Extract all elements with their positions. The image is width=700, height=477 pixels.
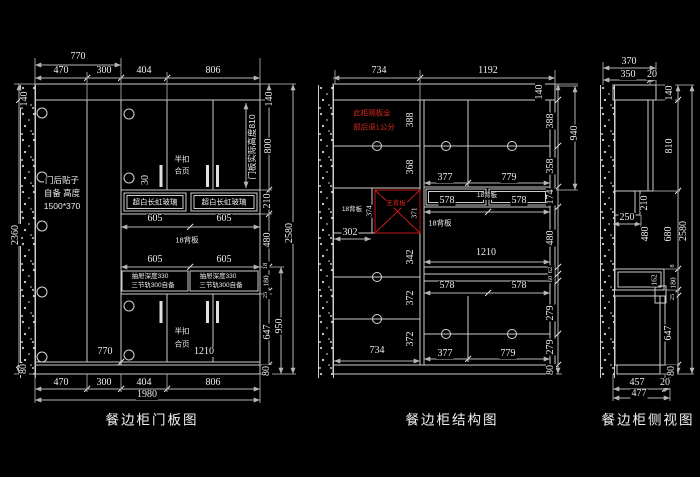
dim-label: 30 — [141, 174, 151, 186]
dim-label: 80 — [262, 365, 272, 377]
dim-label: 210 — [263, 193, 273, 210]
dim-label: 371 — [410, 206, 418, 219]
dim-label: 770 — [97, 347, 114, 357]
dim-label: 388 — [406, 112, 416, 129]
dim-label: 350 — [620, 70, 637, 80]
dim-label: 80 — [546, 364, 556, 376]
dim-label: 1192 — [477, 66, 499, 76]
dim-label: 374 — [365, 204, 373, 217]
dim-label: 210 — [640, 195, 650, 212]
dim-label: 605 — [216, 214, 233, 224]
drawer-note: 抽屉深度330 — [199, 274, 238, 281]
dim-label: 140 — [20, 91, 30, 108]
dim-label: 140 — [665, 85, 675, 102]
dim-label: 372 — [406, 331, 416, 348]
dim-label: 377 — [437, 173, 454, 183]
dim-label: 480 — [263, 232, 273, 249]
no-backboard-label: 无背板 — [385, 201, 407, 208]
dim-label: 140 — [265, 91, 275, 108]
dim-label: 377 — [437, 349, 454, 359]
dim-label: 404 — [136, 378, 153, 388]
warning-note-line2: 部后退1公分 — [352, 123, 396, 131]
dim-label: 300 — [96, 378, 113, 388]
door-note-line2: 自备 高度 — [43, 189, 81, 198]
dim-label: 300 — [96, 66, 113, 76]
drawer-note: 三节轨300自备 — [130, 283, 175, 290]
drawer-note: 三节轨300自备 — [198, 283, 243, 290]
hinge-note: 半扣 — [174, 327, 191, 335]
backboard-label: 18背板 — [427, 219, 452, 227]
dim-label: 950 — [275, 318, 285, 335]
dim-label: 647 — [664, 325, 674, 342]
dim-label: 342 — [406, 249, 416, 266]
dim-label: 779 — [500, 349, 517, 359]
dim-label: 940 — [570, 125, 580, 142]
dim-label: 578 — [511, 196, 528, 206]
dim-label: 8 — [670, 263, 677, 268]
backboard-label: 18背板 — [476, 193, 498, 200]
hinge-note: 合页 — [174, 340, 191, 348]
dim-label: 174 — [546, 189, 556, 206]
cad-drawing-canvas: 770 470 300 404 806 140 2360 80 140 800 … — [0, 0, 700, 477]
dim-label: 2360 — [11, 224, 21, 246]
warning-note-line1: 此柜隔板全 — [352, 109, 392, 117]
dim-label: 388 — [546, 113, 556, 130]
dim-label: 578 — [511, 281, 528, 291]
glass-label: 超白长虹玻璃 — [132, 198, 179, 206]
left-view-title: 餐边柜门板图 — [105, 413, 200, 427]
dim-label: 1980 — [136, 390, 158, 400]
dim-label: 2580 — [679, 220, 689, 242]
dim-label: 80 — [667, 365, 677, 377]
dim-label: 480 — [641, 226, 651, 243]
backboard-label: 18背板 — [174, 236, 199, 244]
dim-label: 279 — [546, 305, 556, 322]
dim-label: 18 — [263, 262, 270, 271]
backboard-label: 18背板 — [341, 207, 363, 214]
dim-label: 605 — [216, 255, 233, 265]
dim-label: 480 — [546, 230, 556, 247]
dim-label: 302 — [342, 228, 359, 238]
door-note-line3: 1500*370 — [43, 202, 81, 211]
glass-label: 超白长虹玻璃 — [201, 198, 248, 206]
dim-label: 806 — [205, 66, 222, 76]
right-view-title: 餐边柜侧视图 — [601, 413, 696, 427]
drawer-note: 抽屉深度330 — [131, 274, 170, 281]
dim-label: 20 — [646, 70, 658, 80]
dim-label: 470 — [53, 66, 70, 76]
dim-label: 647 — [263, 324, 273, 341]
dim-label: 1210 — [193, 347, 215, 357]
dim-label: 140 — [535, 84, 545, 101]
dim-label: 250 — [619, 213, 636, 223]
door-height-note: 门板实际高度810 — [248, 113, 257, 180]
dim-label: 80 — [19, 363, 29, 375]
dim-label: 370 — [621, 57, 638, 67]
dim-label: 25 — [670, 293, 677, 302]
dim-label: 25 — [263, 291, 270, 300]
hinge-note: 合页 — [174, 167, 191, 175]
dim-label: 358 — [546, 158, 556, 175]
dim-label: 578 — [439, 196, 456, 206]
dim-label: 162 — [650, 273, 658, 286]
dim-label: 470 — [53, 378, 70, 388]
dim-label: 60 — [548, 275, 555, 284]
dim-label: 477 — [631, 389, 648, 399]
dim-label: 20 — [659, 378, 671, 388]
door-panel-linework — [14, 58, 296, 403]
dim-label: 62 — [548, 266, 555, 275]
dim-label: 578 — [439, 281, 456, 291]
dim-label: 180 — [669, 276, 677, 289]
hinge-note: 半扣 — [174, 155, 191, 163]
dim-label: 770 — [70, 52, 87, 62]
dim-label: 734 — [371, 66, 388, 76]
dim-label: 404 — [136, 66, 153, 76]
dim-label: 779 — [501, 173, 518, 183]
dim-label: 800 — [264, 138, 274, 155]
dim-label: 810 — [665, 138, 675, 155]
dim-label: 734 — [369, 346, 386, 356]
dim-label: 1210 — [475, 248, 497, 258]
dim-label: 605 — [147, 255, 164, 265]
dim-label: 180 — [262, 274, 270, 287]
middle-view-title: 餐边柜结构图 — [405, 413, 500, 427]
door-note-line1: 门后贴子 — [44, 176, 80, 185]
dim-label: 605 — [147, 214, 164, 224]
dim-label: 457 — [629, 378, 646, 388]
dim-label: 279 — [546, 339, 556, 356]
dim-label: 368 — [406, 159, 416, 176]
dim-label: 680 — [664, 226, 674, 243]
dim-label: 372 — [406, 290, 416, 307]
dim-label: 2580 — [285, 222, 295, 244]
dim-label: 806 — [205, 378, 222, 388]
